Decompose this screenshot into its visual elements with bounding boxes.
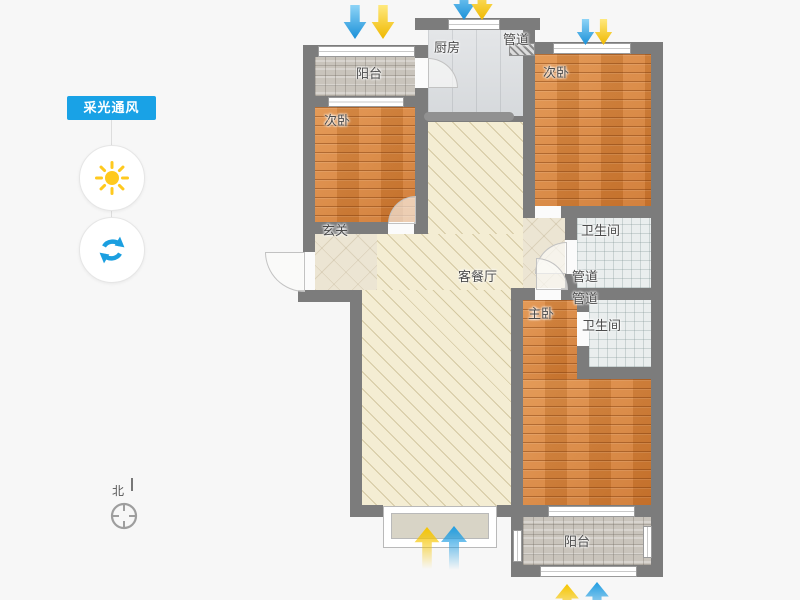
room-label-kitchen: 厨房	[434, 37, 460, 56]
sunlight-arrow-up-icon	[414, 527, 440, 569]
door-gap-bedroom-right	[535, 206, 561, 218]
wall	[577, 367, 663, 379]
sun-icon	[94, 160, 130, 196]
compass-needle	[131, 478, 133, 491]
room-floor-living-lower	[362, 290, 511, 508]
window-balcony-bedroom	[328, 97, 404, 107]
room-label-bedroom-left: 次卧	[324, 110, 350, 129]
sliding-door-kitchen	[424, 112, 514, 121]
rotate-tool-button[interactable]	[79, 217, 145, 283]
lighting-ventilation-label[interactable]: 采光通风	[67, 96, 156, 120]
compass-icon	[108, 500, 140, 532]
wind-arrow-up-icon	[441, 524, 467, 572]
window-balcony-side-right	[643, 526, 652, 558]
sunlight-arrow-down-icon	[371, 5, 395, 39]
sunlight-arrow-down-icon	[471, 0, 493, 20]
room-floor-entry	[315, 234, 377, 290]
wind-arrow-down-icon	[576, 19, 595, 45]
window-kitchen	[448, 19, 500, 30]
room-label-master-bedroom: 主卧	[528, 303, 554, 322]
window-balcony-side-left	[513, 530, 522, 562]
room-label-bathroom-top: 卫生间	[581, 220, 620, 239]
window-balcony-bottom	[540, 566, 637, 577]
sunlight-arrow-down-icon	[594, 19, 613, 45]
room-floor-living-mid	[375, 234, 523, 290]
floorplan-viewer: 采光通风	[0, 0, 800, 600]
room-floor-master-lower	[523, 379, 651, 505]
window-master-balcony	[548, 506, 635, 517]
room-label-duct-mid-1: 管道	[572, 266, 598, 285]
wind-arrow-down-icon	[343, 5, 367, 39]
wind-arrow-up-icon	[583, 582, 611, 600]
room-floor-living-upper	[428, 116, 523, 234]
room-label-bedroom-right: 次卧	[543, 62, 569, 81]
wall	[651, 42, 663, 577]
sunlight-arrow-up-icon	[553, 584, 581, 600]
bay-window-sill	[391, 513, 489, 539]
room-label-duct-top: 管道	[503, 29, 529, 48]
sun-tool-button[interactable]	[79, 145, 145, 211]
room-label-duct-mid-2: 管道	[572, 288, 598, 307]
refresh-icon	[96, 234, 128, 266]
room-label-bathroom-bottom: 卫生间	[582, 315, 621, 334]
compass-north-label: 北	[112, 482, 124, 499]
door-arc-entry	[265, 252, 305, 292]
room-label-balcony-top: 阳台	[356, 63, 382, 82]
wall	[350, 290, 362, 517]
room-label-balcony-bottom: 阳台	[564, 531, 590, 550]
connector-line	[111, 120, 112, 146]
door-gap-kitchen	[415, 58, 428, 88]
room-label-entry: 玄关	[322, 220, 348, 239]
wall	[350, 505, 383, 517]
window-balcony-top	[318, 46, 415, 57]
room-label-living-dining: 客餐厅	[458, 266, 497, 285]
